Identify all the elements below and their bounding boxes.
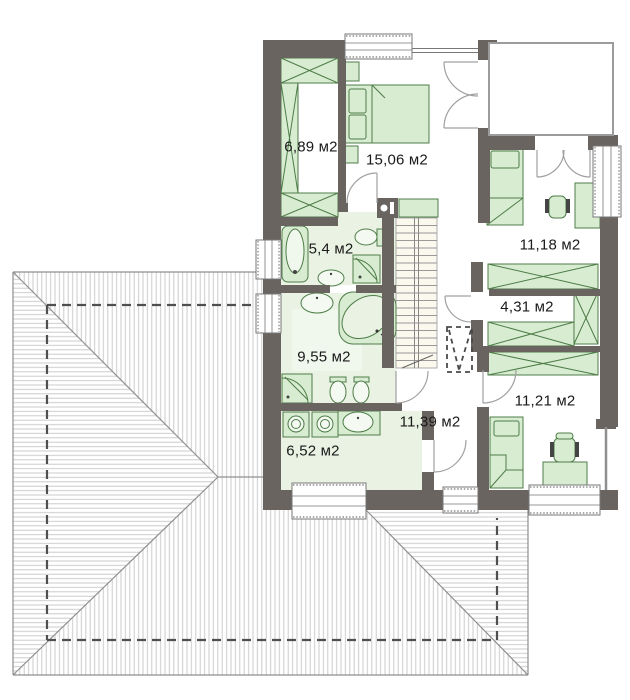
room-label-bathroom-large: 9,55 м2 <box>297 349 350 366</box>
sink-symbol <box>338 411 380 435</box>
room-label-bedroom-master: 15,06 м2 <box>366 152 428 169</box>
window <box>345 34 412 59</box>
sink-symbol <box>318 270 344 286</box>
sink-symbol <box>301 293 333 313</box>
shower-symbol <box>353 255 380 283</box>
window <box>593 146 621 217</box>
toilet-symbol <box>330 377 346 403</box>
pillow <box>491 151 519 168</box>
room-label-bathroom-small: 5,4 м2 <box>309 241 354 258</box>
room-label-bedroom-top-right: 11,18 м2 <box>520 237 581 254</box>
window <box>256 294 281 333</box>
toilet-symbol <box>355 229 385 246</box>
room-label-wardrobe: 6,89 м2 <box>284 139 337 156</box>
staircase <box>396 218 437 368</box>
floor-plan: 6,89 м2 15,06 м2 5,4 м2 11,18 м2 4,31 м2… <box>0 0 630 700</box>
room-label-bedroom-bottom-right: 11,21 м2 <box>515 393 576 410</box>
void-open-to-below <box>489 43 613 135</box>
window <box>256 240 281 279</box>
bidet-symbol <box>353 377 369 403</box>
cabinet-symbol <box>399 199 438 217</box>
room-label-laundry: 6,52 м2 <box>286 443 339 460</box>
single-bed-symbol <box>490 417 523 488</box>
single-bed-symbol <box>487 147 523 225</box>
washing-machine-icon <box>312 412 338 437</box>
room-label-hall: 11,39 м2 <box>400 414 461 431</box>
nightstand <box>345 146 358 163</box>
window <box>443 487 478 513</box>
pillow <box>349 89 366 113</box>
pillow <box>349 115 366 139</box>
chimney-flue <box>381 205 388 212</box>
desk-symbol <box>543 462 587 487</box>
window <box>529 485 600 515</box>
window <box>292 483 366 519</box>
washing-machine-icon <box>283 412 309 437</box>
pillow <box>494 421 519 436</box>
exterior-wall-top <box>263 40 347 58</box>
nightstand <box>345 62 359 81</box>
bathtub-symbol <box>282 226 308 282</box>
shower-symbol <box>282 374 312 403</box>
room-label-walk-in-closet: 4,31 м2 <box>500 299 553 316</box>
